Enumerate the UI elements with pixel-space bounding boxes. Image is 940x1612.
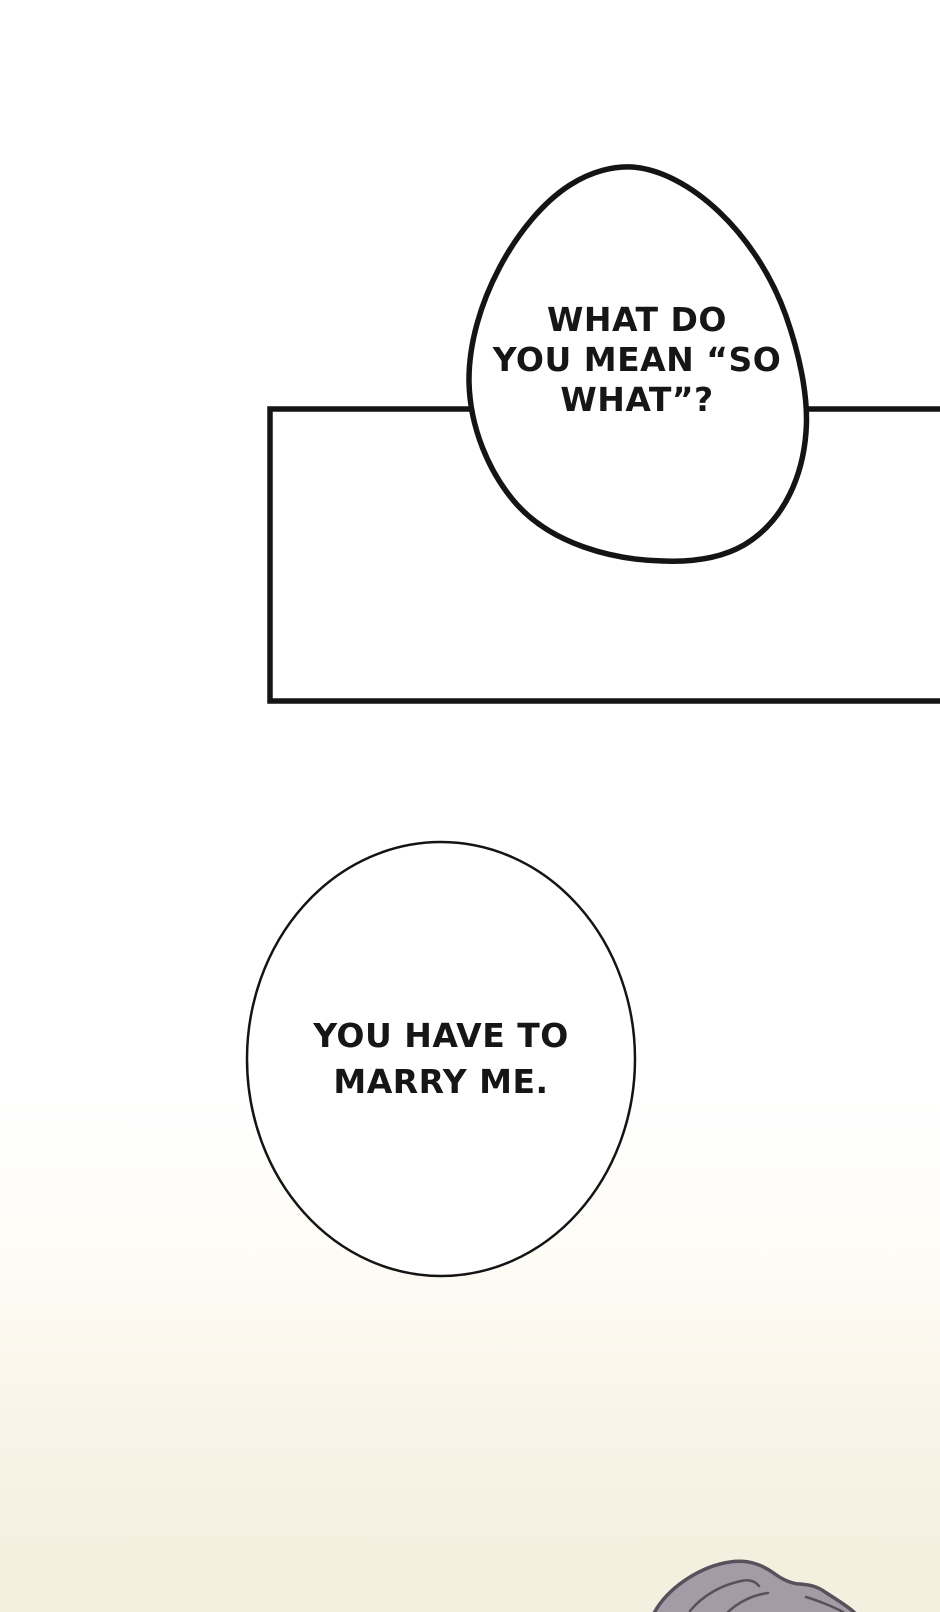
comic-artwork [0, 0, 940, 1612]
speech-bubble-1-text: WHAT DO YOU MEAN “SO WHAT”? [477, 300, 797, 420]
page-background [0, 0, 940, 1612]
comic-page: WHAT DO YOU MEAN “SO WHAT”? YOU HAVE TO … [0, 0, 940, 1612]
speech-bubble-2-text: YOU HAVE TO MARRY ME. [281, 1013, 601, 1105]
